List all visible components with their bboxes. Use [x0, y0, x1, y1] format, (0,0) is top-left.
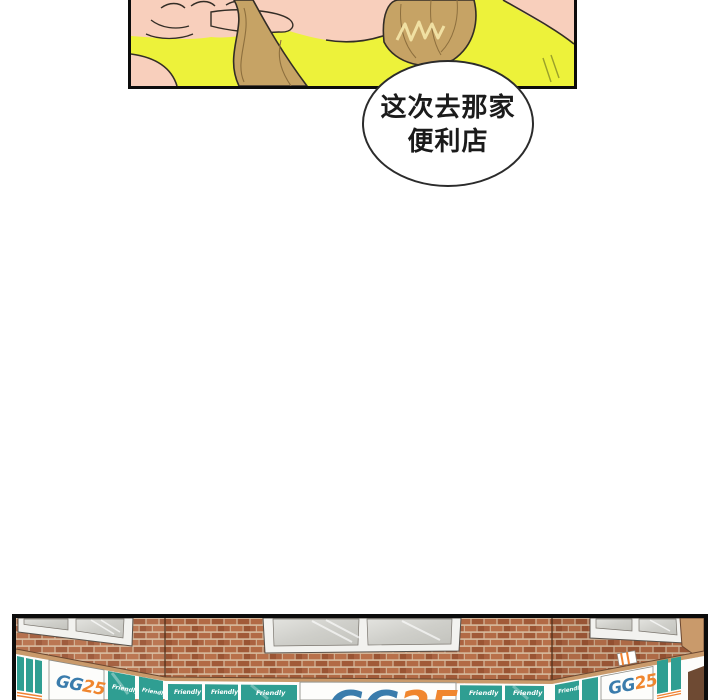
- friendly-sign-text: Friendly: [174, 689, 202, 696]
- window-right: [590, 618, 685, 643]
- store-artwork: GG25 Friendly Friendly Friendly Friendly…: [16, 618, 704, 700]
- friendly-sign-text: Friendly: [469, 689, 499, 697]
- panel-bottom: GG25 Friendly Friendly Friendly Friendly…: [12, 614, 708, 700]
- friendly-sign-text: Friendly: [513, 689, 543, 697]
- comic-page: 这次去那家 便利店: [0, 0, 720, 700]
- friendly-sign-text: Friendly: [211, 689, 239, 696]
- gg25-logo-center: GG25: [328, 682, 459, 700]
- friendly-sign-text: Friendly: [256, 689, 286, 697]
- speech-line-2: 便利店: [407, 124, 488, 158]
- panel-top: [128, 0, 577, 89]
- speech-bubble: 这次去那家 便利店: [362, 60, 534, 187]
- window-center: [263, 618, 461, 653]
- left-edge-strips: [17, 656, 42, 700]
- speech-line-1: 这次去那家: [380, 90, 515, 124]
- top-panel-artwork: [131, 0, 574, 86]
